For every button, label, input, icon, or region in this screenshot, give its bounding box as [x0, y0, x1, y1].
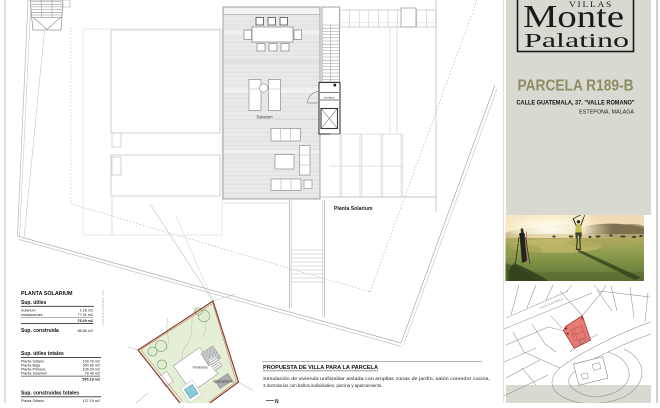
svg-text:Aparcamiento: Aparcamiento	[213, 379, 234, 383]
svg-text:PLANTA SOLARIUM: PLANTA SOLARIUM	[21, 291, 73, 297]
svg-text:137.15 m2: 137.15 m2	[83, 399, 100, 403]
svg-text:78.49 m2: 78.49 m2	[77, 319, 93, 323]
svg-text:Vivienda: Vivienda	[192, 365, 208, 370]
svg-text:Sup. construida: Sup. construida	[21, 328, 59, 334]
svg-text:77.31 m2: 77.31 m2	[78, 313, 93, 317]
svg-text:Solarium: Solarium	[256, 114, 273, 119]
svg-text:Sup. útiles totales: Sup. útiles totales	[21, 351, 64, 357]
svg-text:PLANTA SOLARIUM E 1:100: PLANTA SOLARIUM E 1:100	[101, 289, 105, 326]
svg-text:N: N	[275, 399, 279, 403]
svg-text:PARCELA R189-B: PARCELA R189-B	[518, 78, 634, 95]
svg-text:ESTEPONA. MÁLAGA: ESTEPONA. MÁLAGA	[579, 109, 634, 116]
svg-text:Simulación de vivienda unifami: Simulación de vivienda unifamiliar aisla…	[263, 376, 490, 381]
svg-text:Sup. útiles: Sup. útiles	[21, 300, 47, 306]
svg-text:Solarium: Solarium	[21, 309, 36, 313]
svg-text:CALLE GUATEMALA, 37. "VALLE RO: CALLE GUATEMALA, 37. "VALLE ROMANO"	[517, 100, 635, 107]
svg-text:3 dormitorios con baños indivi: 3 dormitorios con baños individuales, pi…	[263, 383, 383, 388]
svg-text:1.18 m2: 1.18 m2	[80, 309, 93, 313]
svg-text:Instalac.: Instalac.	[324, 95, 336, 99]
svg-text:Planta Solarium: Planta Solarium	[21, 372, 47, 376]
svg-text:Palatino: Palatino	[524, 30, 629, 52]
svg-text:Planta Solarium: Planta Solarium	[334, 206, 373, 212]
svg-text:Sup. construidas totales: Sup. construidas totales	[21, 391, 79, 397]
svg-text:PROPUESTA DE VILLA PARA LA PAR: PROPUESTA DE VILLA PARA LA PARCELA	[263, 365, 378, 371]
svg-text:78.49 m2: 78.49 m2	[85, 372, 100, 376]
svg-text:86.85 m2: 86.85 m2	[78, 329, 93, 333]
svg-text:595.19 m2: 595.19 m2	[82, 378, 100, 382]
svg-text:Instalaciones: Instalaciones	[21, 313, 43, 317]
svg-text:Planta Sótano: Planta Sótano	[21, 399, 44, 403]
